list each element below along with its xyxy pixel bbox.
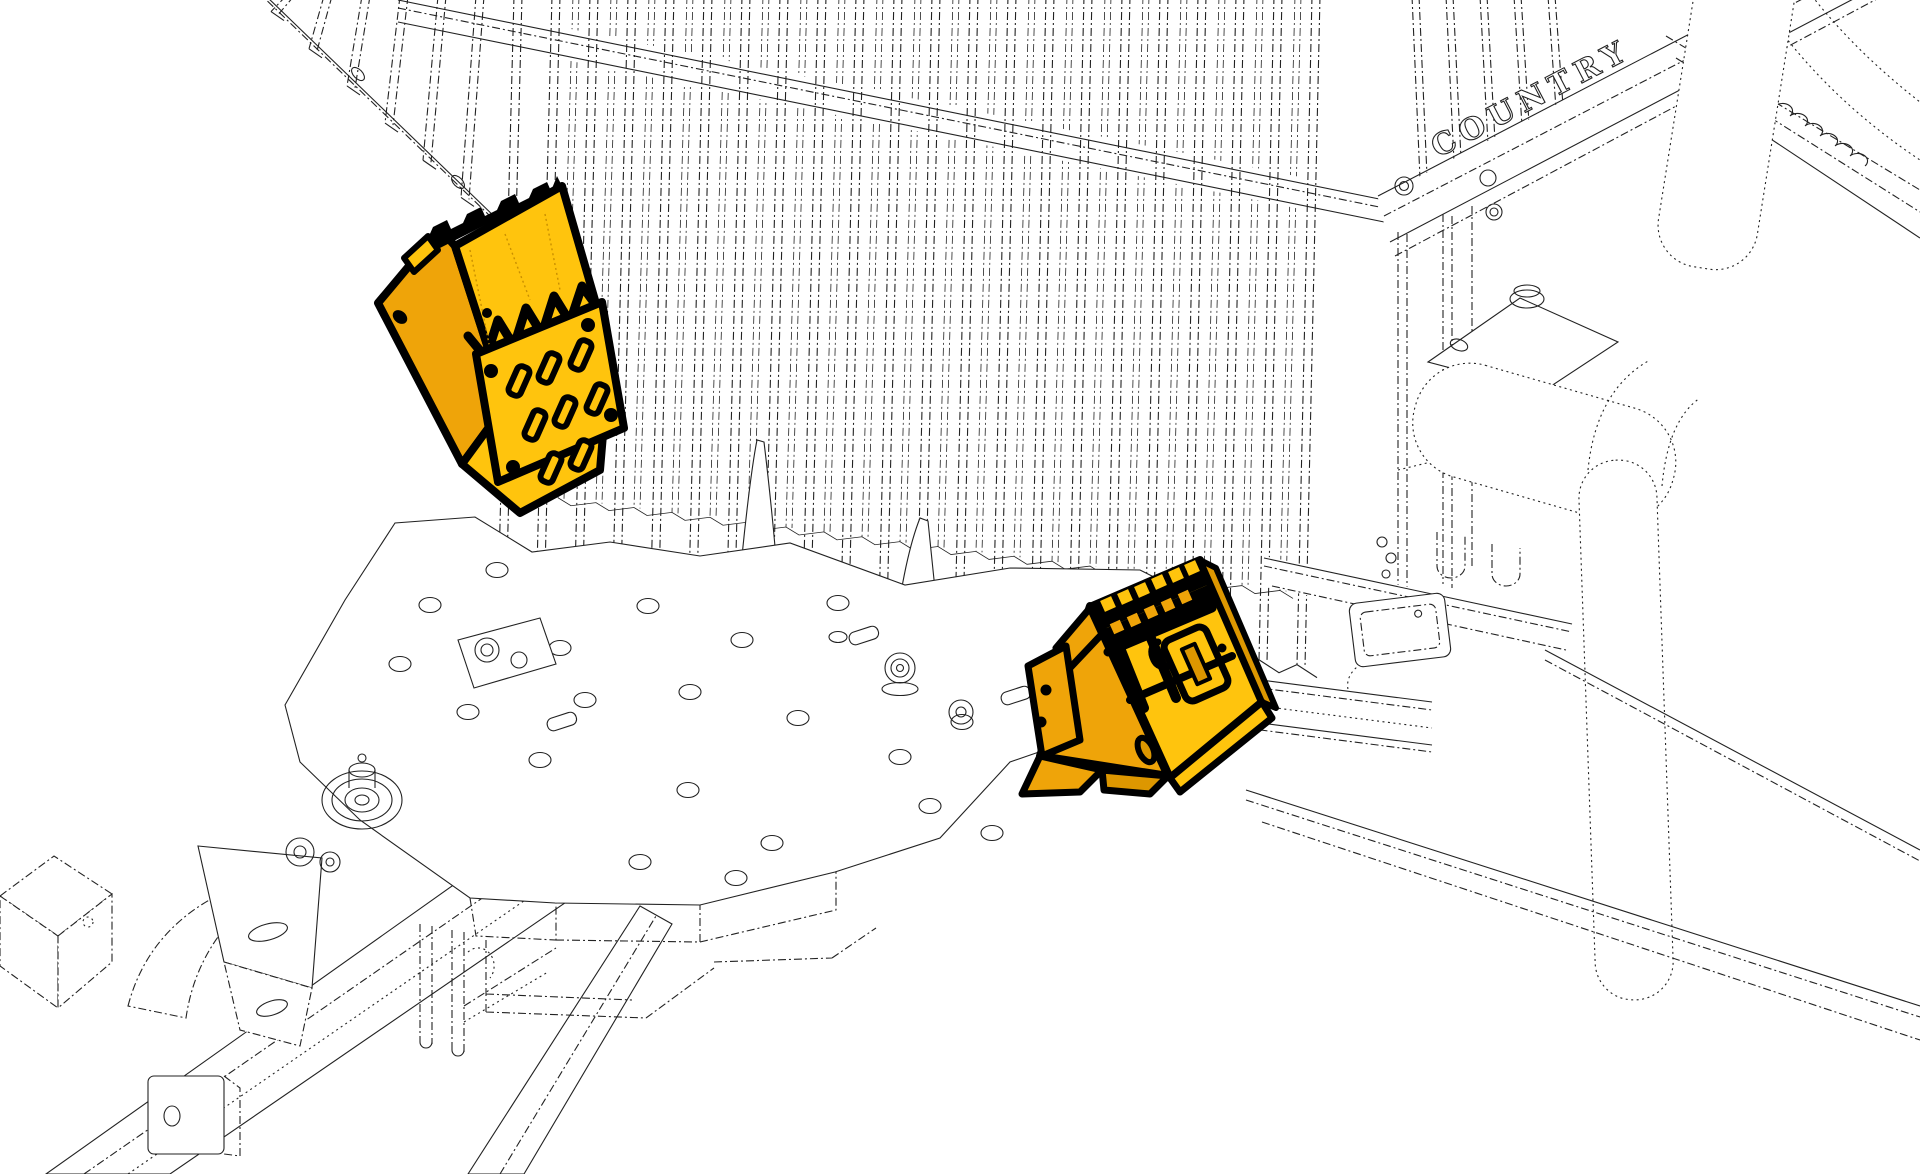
highlighted-part-left xyxy=(378,176,624,513)
panel-corner-steps xyxy=(271,12,474,207)
machinery-line-drawing: COUNTRY xyxy=(0,0,1920,1174)
drawbar-box xyxy=(0,856,112,1008)
receiver-plate xyxy=(1338,592,1455,694)
brand-beam: COUNTRY xyxy=(1378,0,1920,258)
technical-illustration: COUNTRY xyxy=(0,0,1920,1174)
